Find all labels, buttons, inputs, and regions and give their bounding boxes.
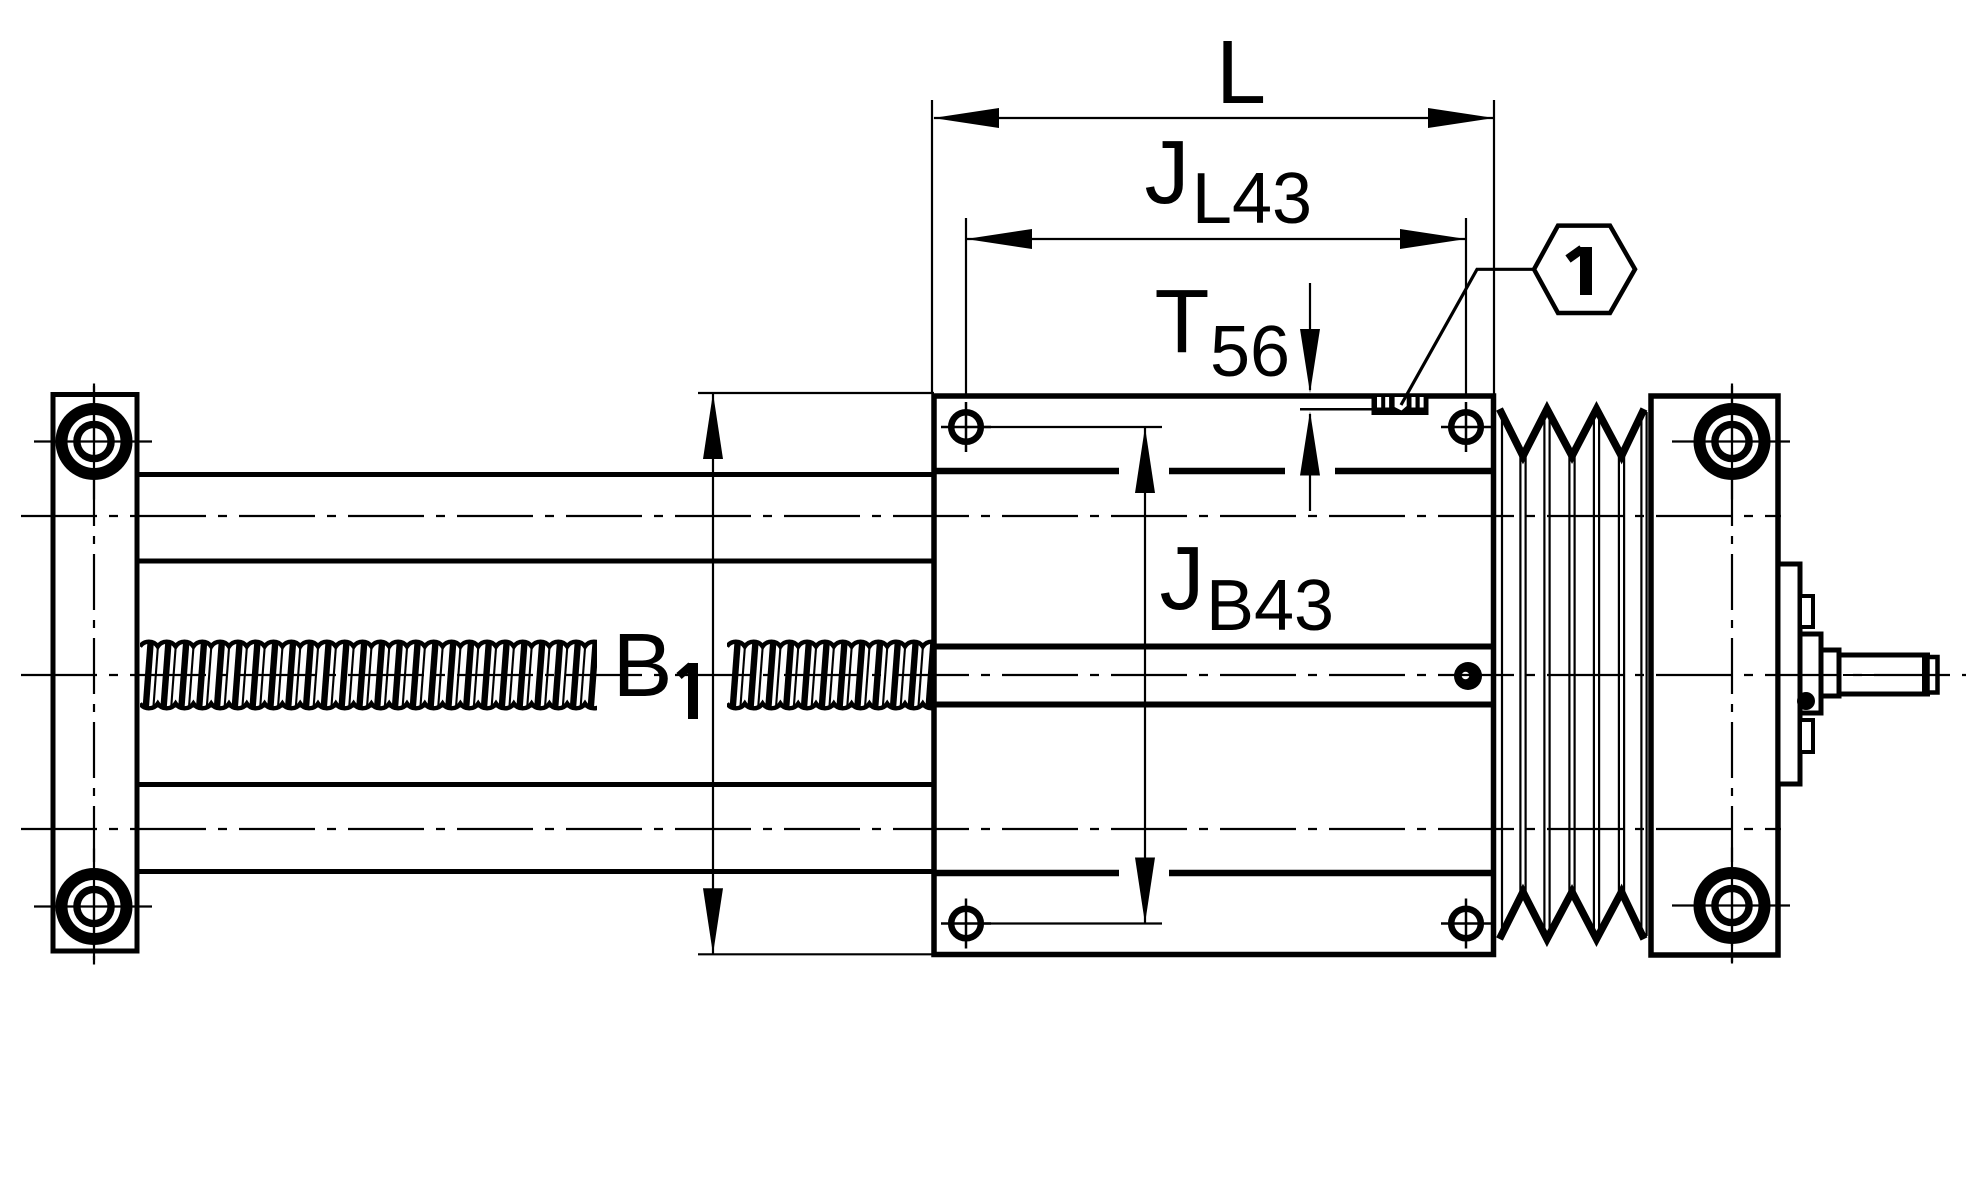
svg-text:J: J: [1145, 123, 1190, 223]
svg-text:L43: L43: [1192, 159, 1312, 239]
svg-text:T: T: [1155, 272, 1210, 372]
svg-text:B: B: [612, 616, 672, 716]
svg-text:B43: B43: [1206, 566, 1334, 646]
svg-text:J: J: [1160, 529, 1205, 629]
svg-text:L: L: [1216, 23, 1266, 123]
svg-text:56: 56: [1210, 312, 1290, 392]
